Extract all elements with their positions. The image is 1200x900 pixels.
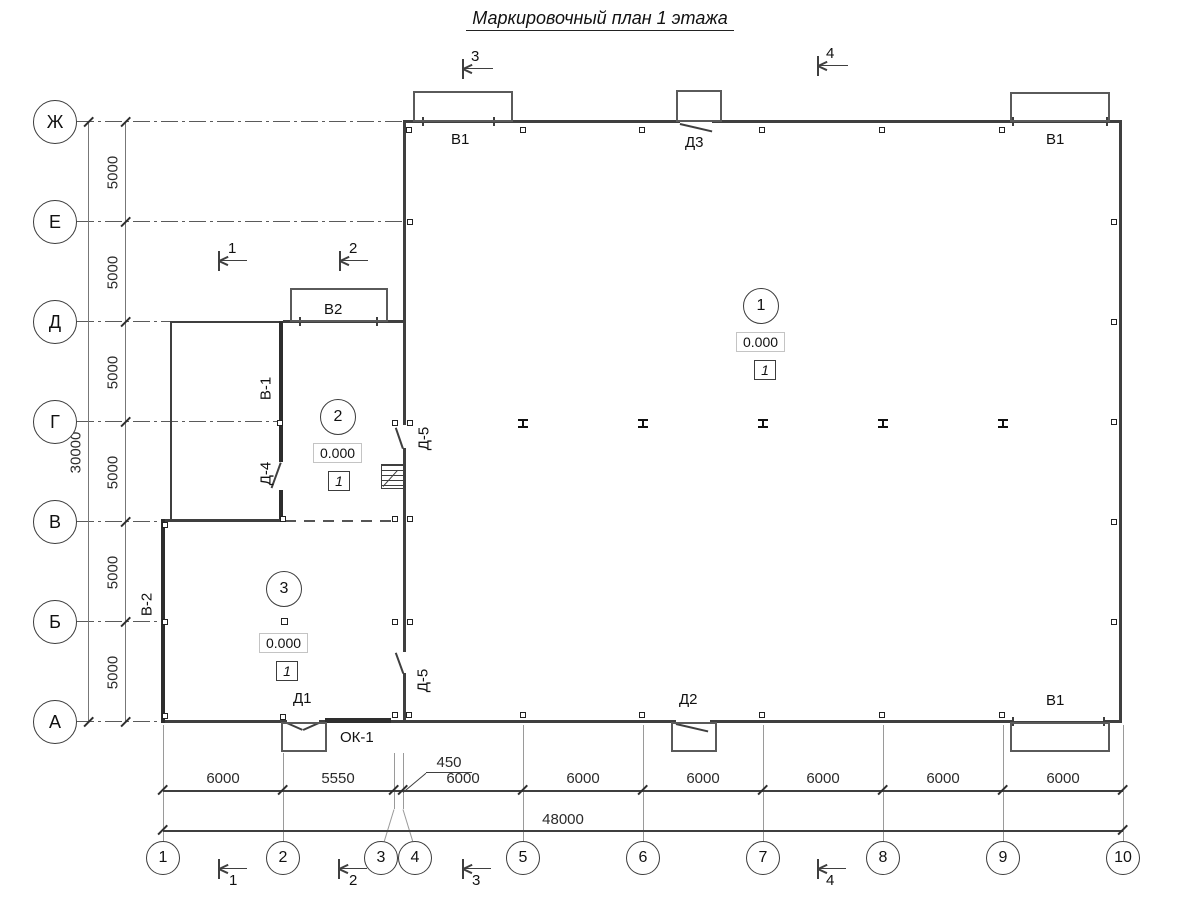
elevation-text: 0.000 [743,334,778,350]
column-marker [520,127,526,133]
column-marker [1111,219,1117,225]
wall-line [170,321,172,519]
room-3-finish-box: 1 [276,661,298,681]
column-marker [1111,619,1117,625]
column-marker [999,127,1005,133]
wall-line [163,519,283,522]
dim-bottom: 5550 [308,770,368,787]
axis-circle-number: 5 [506,841,540,875]
label-ok1: ОК-1 [340,729,374,746]
axis-circle-letter: Г [33,400,77,444]
extension-line [1003,725,1004,841]
label-d1: Д1 [293,690,312,707]
extension-line [403,753,404,809]
ibeam-column [998,419,1008,428]
section-label-1: 1 [229,872,237,889]
porch-outline [281,722,327,752]
column-marker [407,619,413,625]
axis-number: 2 [279,849,288,867]
column-marker [1111,519,1117,525]
dim-5000: 5000 [105,351,122,395]
room-3-elevation: 0.000 [259,633,308,653]
column-marker [879,712,885,718]
column-marker [1111,319,1117,325]
label-d-5-upper: Д-5 [416,419,433,459]
axis-circle-number: 8 [866,841,900,875]
window-ok1 [325,718,391,723]
label-v1-top-right: В1 [1046,131,1064,148]
axis-line-g [77,421,282,422]
wall-line [495,120,680,123]
axis-number: 9 [999,849,1008,867]
wall-line [1119,120,1122,723]
column-marker [162,522,168,528]
axis-circle-number: 7 [746,841,780,875]
section-mark-line [818,65,848,66]
column-marker [520,712,526,718]
column-marker [162,713,168,719]
ibeam-column [518,419,528,428]
label-d-5-lower: Д-5 [415,661,432,701]
axis-number: 4 [411,849,420,867]
label-v1-bottom: В1 [1046,692,1064,709]
label-v1-top-left: В1 [451,131,469,148]
dim-bottom: 6000 [793,770,853,787]
leader-line-450 [426,772,472,773]
axis-number: 3 [377,849,386,867]
axis-circle-letter: Б [33,600,77,644]
column-marker [407,516,413,522]
door-leaf-d5-lower [395,652,404,673]
column-marker [280,516,286,522]
column-marker [281,618,288,625]
wall-thick-v1 [279,321,283,462]
dim-450: 450 [427,754,471,771]
section-mark-line [463,868,491,869]
dim-bottom: 6000 [553,770,613,787]
wall-line [170,321,283,323]
label-v-1: В-1 [258,369,275,409]
section-mark-line [219,868,247,869]
extension-line [384,809,395,841]
extension-line [643,725,644,841]
wall-line [712,120,1013,123]
axis-circle-number: 4 [398,841,432,875]
section-mark-line [818,868,846,869]
room-divider-dashed [285,520,393,522]
dim-5000: 5000 [105,451,122,495]
column-marker [406,127,412,133]
axis-letter: Ж [47,112,64,133]
dim-5000: 5000 [105,251,122,295]
extension-line [394,753,395,809]
porch-outline [1010,722,1110,752]
section-mark-line [219,260,247,261]
dim-bottom-total: 48000 [528,811,598,828]
ibeam-column [878,419,888,428]
column-marker [406,712,412,718]
porch-outline [413,91,513,122]
section-label-3: 3 [471,48,479,65]
column-marker [392,420,398,426]
column-marker [162,619,168,625]
porch-outline [1010,92,1110,122]
section-label-2: 2 [349,872,357,889]
column-marker [639,712,645,718]
room-2-number: 2 [320,399,356,435]
column-marker [392,712,398,718]
axis-number: 1 [159,849,168,867]
section-label-2: 2 [349,240,357,257]
axis-letter: Е [49,212,61,233]
label-d3: Д3 [685,134,704,151]
axis-circle-letter: А [33,700,77,744]
axis-number: 5 [519,849,528,867]
dim-line [163,830,1123,832]
axis-number: 8 [879,849,888,867]
column-marker [407,219,413,225]
extension-line [523,725,524,841]
dim-5000: 5000 [105,651,122,695]
room-1-finish-box: 1 [754,360,776,380]
room-1-number: 1 [743,288,779,324]
column-marker [407,420,413,426]
extension-line [883,725,884,841]
axis-circle-number: 1 [146,841,180,875]
extension-line [163,725,164,841]
finish-text: 1 [283,663,291,679]
wall-line [710,720,1013,723]
column-marker [392,619,398,625]
section-mark-line [463,68,493,69]
elevation-text: 0.000 [320,445,355,461]
axis-circle-number: 10 [1106,841,1140,875]
drawing-title: Маркировочный план 1 этажа [0,8,1200,29]
room-3-number: 3 [266,571,302,607]
room-number-text: 3 [280,580,289,598]
column-marker [277,420,283,426]
axis-letter: Б [49,612,61,633]
column-marker [999,712,1005,718]
axis-circle-number: 2 [266,841,300,875]
extension-line [763,725,764,841]
room-1-elevation: 0.000 [736,332,785,352]
porch-outline [676,90,722,122]
door-leaf-d5-upper [395,428,404,449]
axis-circle-number: 6 [626,841,660,875]
ibeam-column [638,419,648,428]
column-marker [1111,419,1117,425]
axis-circle-number: 3 [364,841,398,875]
dim-5000: 5000 [105,551,122,595]
wall-thick-v1 [279,490,283,519]
section-label-1: 1 [228,240,236,257]
dim-bottom: 6000 [1033,770,1093,787]
ibeam-column [758,419,768,428]
dim-bottom: 6000 [673,770,733,787]
column-marker [280,714,286,720]
floor-plan-sheet: Маркировочный план 1 этажа [0,0,1200,900]
dim-5000: 5000 [105,151,122,195]
section-label-4: 4 [826,45,834,62]
dim-line [88,122,89,723]
axis-letter: В [49,512,61,533]
label-v2: В2 [324,301,342,318]
dim-bottom: 6000 [193,770,253,787]
label-d-4: Д-4 [258,454,275,494]
column-marker [759,712,765,718]
elevation-text: 0.000 [266,635,301,651]
axis-number: 6 [639,849,648,867]
section-label-4: 4 [826,872,834,889]
column-marker [639,127,645,133]
axis-circle-number: 9 [986,841,1020,875]
finish-text: 1 [761,362,769,378]
axis-circle-letter: Ж [33,100,77,144]
room-2-elevation: 0.000 [313,443,362,463]
axis-number: 10 [1114,849,1132,867]
axis-letter: А [49,712,61,733]
axis-circle-letter: Д [33,300,77,344]
label-d2: Д2 [679,691,698,708]
column-marker [759,127,765,133]
section-mark-line [339,868,367,869]
door-leaf-d3 [680,123,712,132]
extension-line [403,809,414,841]
extension-line [1123,725,1124,841]
axis-letter: Д [49,312,61,333]
wall-line [403,120,406,425]
axis-number: 7 [759,849,768,867]
finish-text: 1 [335,473,343,489]
axis-letter: Г [50,412,60,433]
axis-line-v [77,521,163,522]
label-v-2: В-2 [139,585,156,625]
section-mark-line [340,260,368,261]
column-marker [879,127,885,133]
room-2-finish-box: 1 [328,471,350,491]
axis-circle-letter: В [33,500,77,544]
section-label-3: 3 [472,872,480,889]
room-number-text: 1 [757,297,766,315]
dim-bottom: 6000 [913,770,973,787]
column-marker [392,516,398,522]
extension-line [283,753,284,841]
axis-circle-letter: Е [33,200,77,244]
porch-outline [671,722,717,752]
wall-line [163,720,287,723]
room-number-text: 2 [334,408,343,426]
